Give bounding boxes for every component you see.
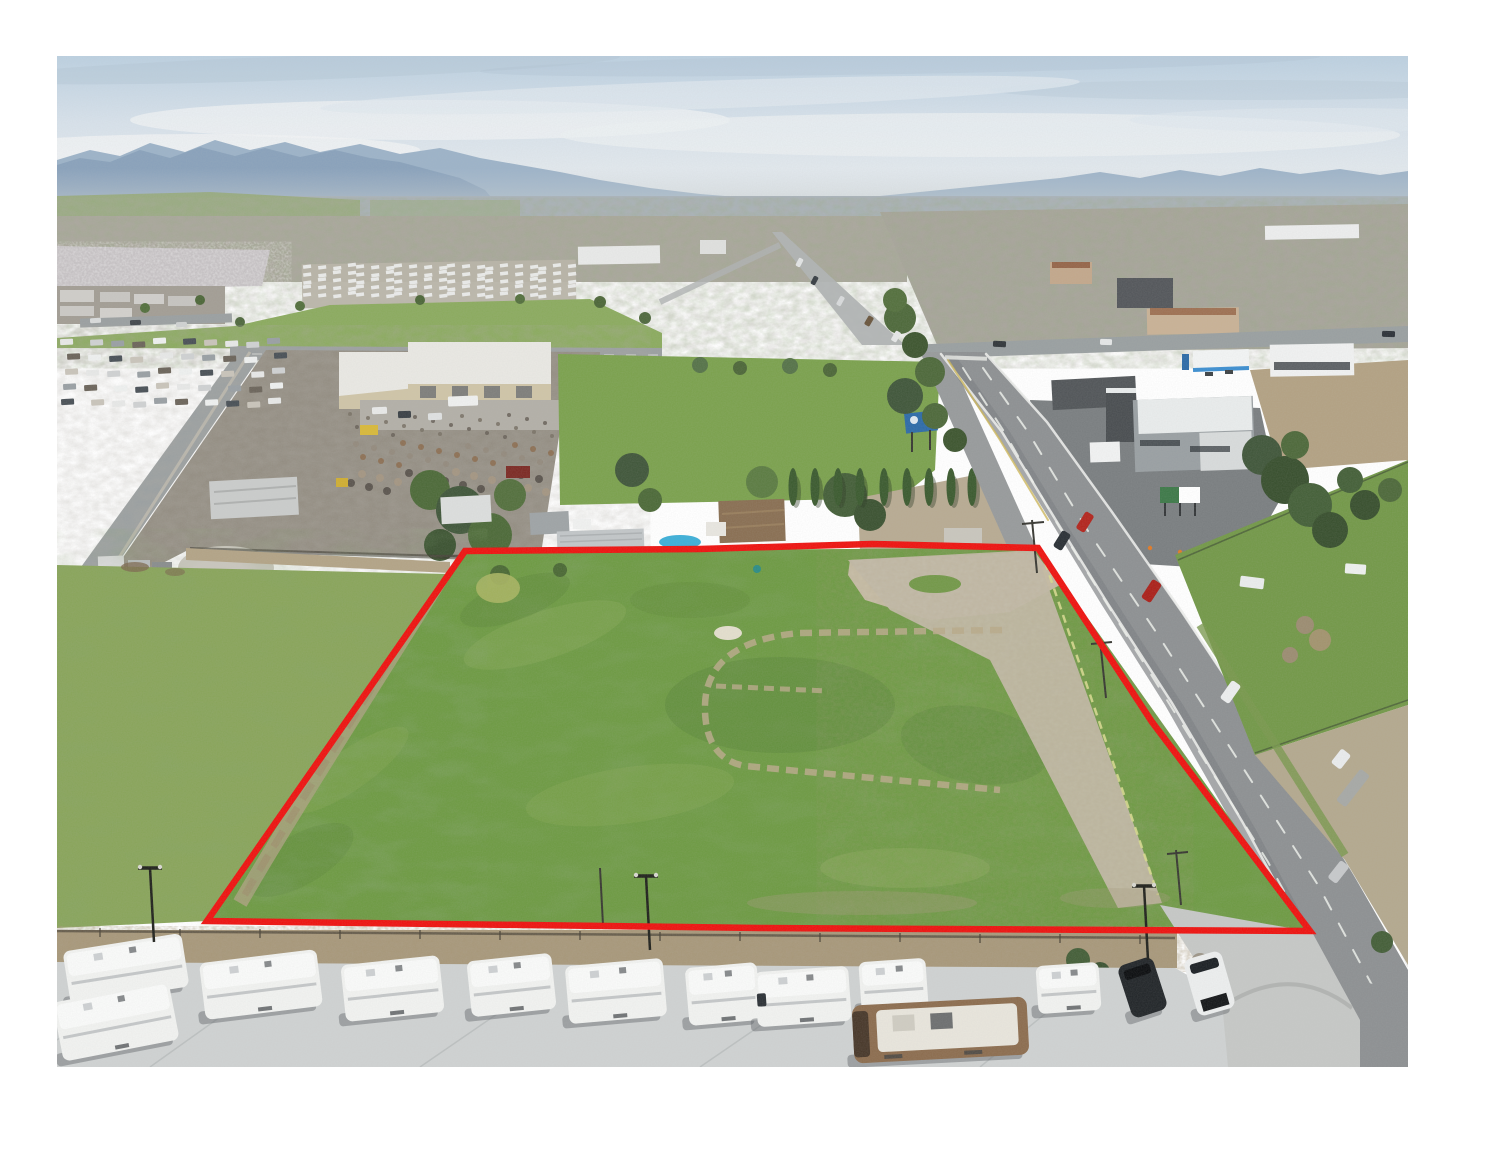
- aerial-photo-figure: [0, 0, 1500, 1159]
- photo-grain: [57, 56, 1408, 1067]
- aerial-photo-canvas: [0, 0, 1500, 1159]
- photo-area: [0, 45, 1500, 1068]
